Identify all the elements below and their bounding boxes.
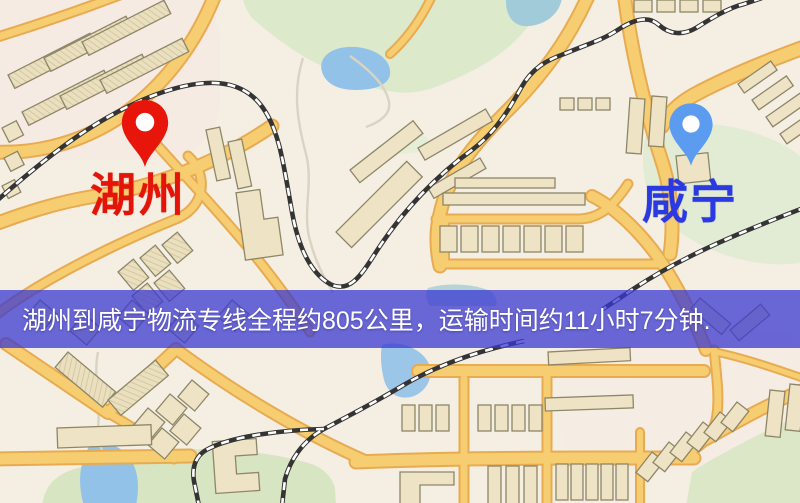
- map-pin-icon: [667, 102, 715, 168]
- origin-label: 湖州: [90, 172, 186, 218]
- route-info-text: 湖州到咸宁物流专线全程约805公里，运输时间约11小时7分钟.: [0, 301, 711, 337]
- logistics-route-map: 湖州 咸宁 湖州到咸宁物流专线全程约805公里，运输时间约11小时7分钟.: [0, 0, 800, 503]
- origin-marker: [119, 99, 171, 169]
- route-info-banner: 湖州到咸宁物流专线全程约805公里，运输时间约11小时7分钟.: [0, 290, 800, 348]
- pin-body: [669, 103, 712, 165]
- pin-body: [122, 100, 168, 167]
- destination-label: 咸宁: [642, 179, 738, 225]
- map-background: [0, 0, 800, 503]
- map-pin-icon: [119, 99, 171, 169]
- destination-marker: [667, 102, 715, 168]
